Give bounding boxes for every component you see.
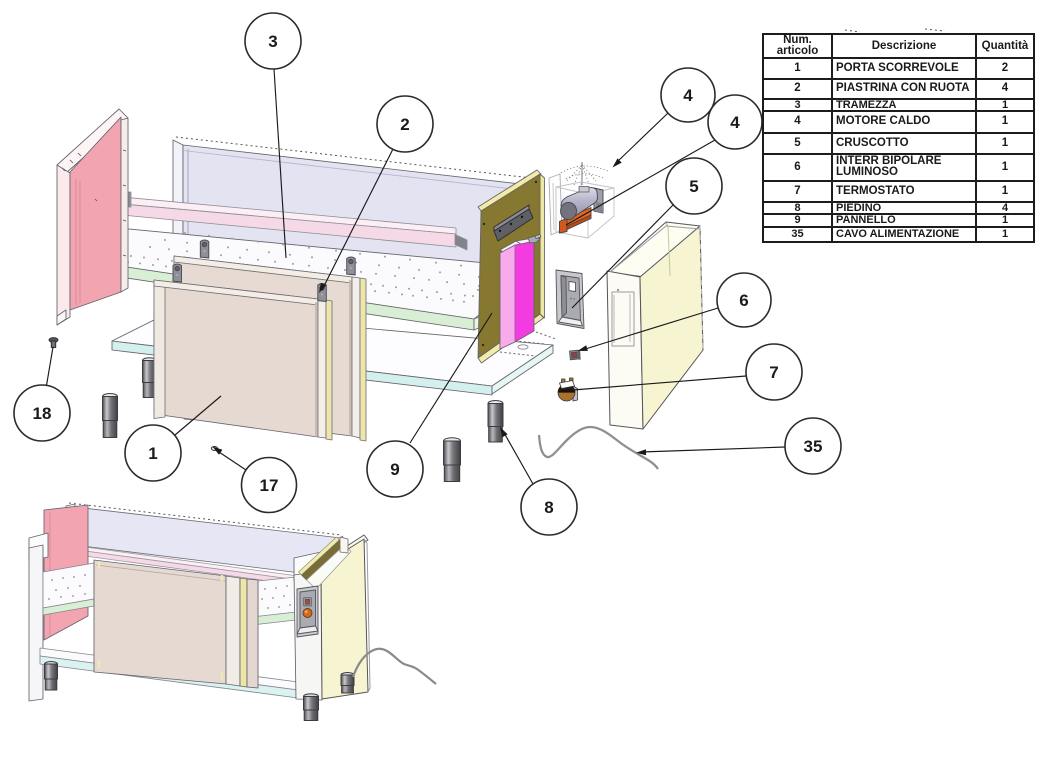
svg-text:9: 9 bbox=[390, 460, 399, 479]
svg-text:35: 35 bbox=[804, 437, 823, 456]
svg-text:7: 7 bbox=[769, 363, 778, 382]
svg-text:17: 17 bbox=[260, 476, 279, 495]
svg-text:4: 4 bbox=[683, 86, 693, 105]
svg-text:2: 2 bbox=[400, 115, 409, 134]
svg-text:5: 5 bbox=[689, 177, 698, 196]
svg-text:3: 3 bbox=[268, 32, 277, 51]
svg-text:8: 8 bbox=[544, 498, 553, 517]
svg-text:18: 18 bbox=[33, 404, 52, 423]
svg-text:6: 6 bbox=[739, 291, 748, 310]
svg-text:1: 1 bbox=[148, 444, 157, 463]
svg-text:4: 4 bbox=[730, 113, 740, 132]
